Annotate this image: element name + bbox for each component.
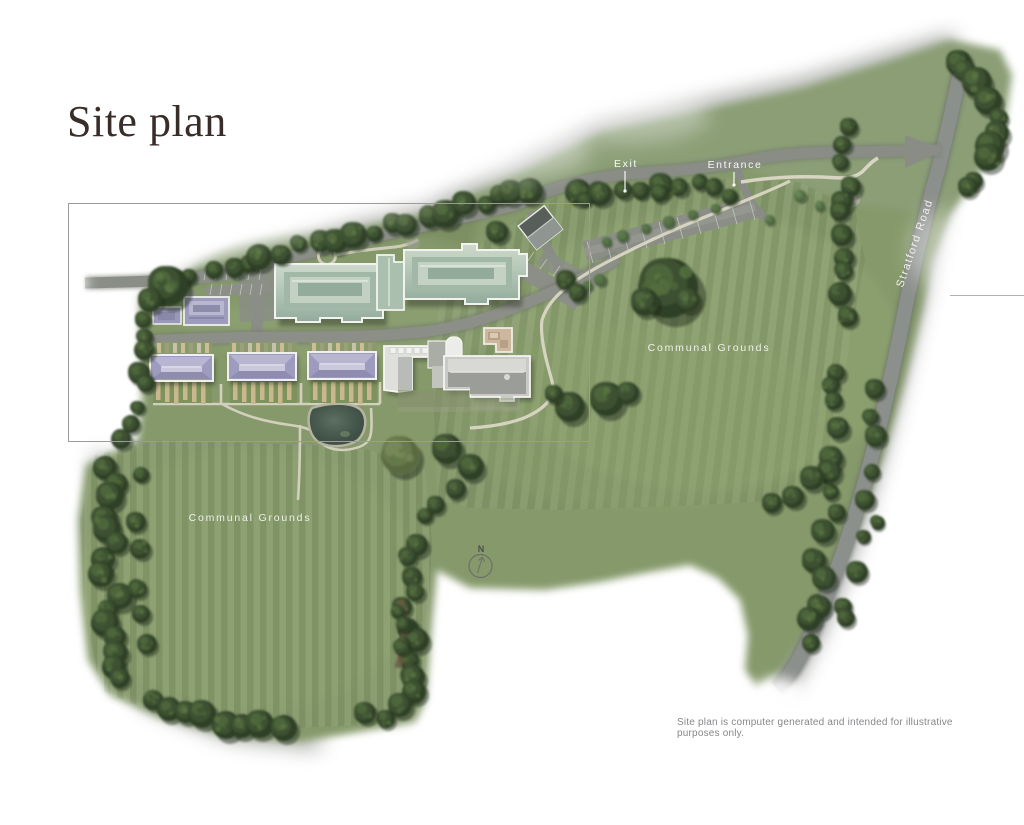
svg-text:Communal Grounds: Communal Grounds xyxy=(189,512,312,524)
svg-text:Exit: Exit xyxy=(614,158,638,170)
svg-text:Communal Grounds: Communal Grounds xyxy=(648,342,771,354)
svg-text:N: N xyxy=(478,544,485,554)
svg-text:Entrance: Entrance xyxy=(708,159,763,171)
